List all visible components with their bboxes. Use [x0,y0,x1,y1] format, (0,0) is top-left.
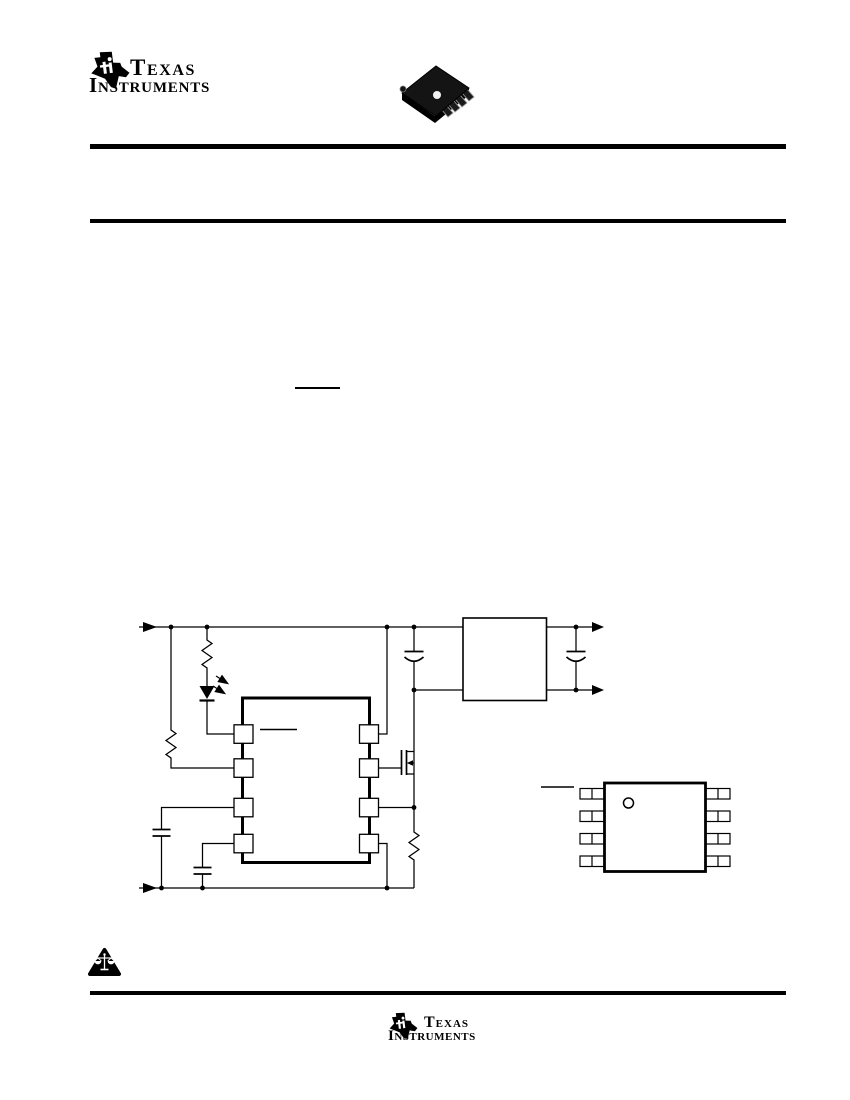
capacitor-c2 [194,844,235,889]
pin-box-left-4 [234,834,253,853]
scales-in-triangle-icon [90,950,119,974]
pin-box-right-3 [360,798,379,817]
input-arrow [143,622,157,632]
body-diode-arrow [407,760,413,766]
capacitor-c4 [567,627,586,690]
pin-box-left-3 [234,798,253,817]
capacitor-c1 [153,808,235,889]
application-circuit-schematic [0,0,850,1100]
pin1-indicator-circle [624,798,634,808]
wire-pin1r-to-rail [379,627,388,734]
pin-box-right-4 [360,834,379,853]
resistor-r2-led-d1 [200,627,235,734]
footer-rule [90,991,786,995]
wire-pin4r-to-rail [379,844,388,889]
pin-box-right-2 [360,759,379,778]
output-rails [547,622,605,695]
datasheet-page: Texas Instruments [0,0,850,1100]
led-emission-arrow [216,676,227,683]
package-pinout-diagram [541,783,730,872]
nmos-q1 [379,690,415,808]
pin-box-left-1 [234,725,253,744]
resistor-r3 [409,808,419,889]
module-box-t1 [463,618,547,701]
pin-box-left-2 [234,759,253,778]
return-arrow [143,883,157,893]
return-rail [139,883,414,893]
ic-body [243,698,370,863]
led-emission-arrow [213,686,224,693]
capacitor-c3 [405,627,424,690]
output-arrow-bottom [592,685,604,695]
led-triangle [200,686,215,699]
pin-box-right-1 [360,725,379,744]
footer-brand-line2: Instruments [388,1029,476,1044]
pinout-body [605,783,706,872]
output-arrow-top [592,622,604,632]
resistor-r1 [166,627,234,768]
